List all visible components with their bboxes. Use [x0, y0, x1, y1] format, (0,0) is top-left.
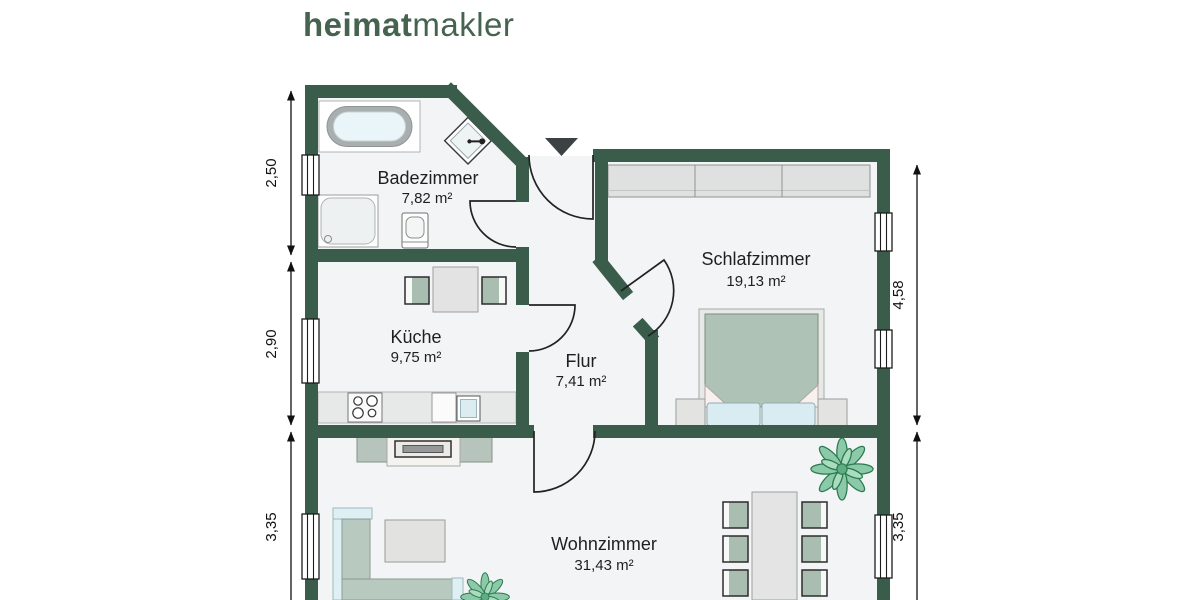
window-bedroom-2 — [875, 330, 892, 368]
plant-icon-1 — [811, 438, 873, 500]
dimension-label-left-3: 3,35 — [263, 512, 280, 541]
kitchen-sink — [432, 393, 480, 422]
window-bedroom-1 — [875, 213, 892, 251]
stove — [348, 393, 382, 422]
dimension-lines-left: 2,50 2,90 3,35 — [263, 91, 291, 600]
dimension-label-right-2: 3,35 — [890, 512, 907, 541]
dining-chair-5 — [802, 536, 827, 562]
nightstand-left — [676, 399, 705, 428]
room-label-kueche: Küche 9,75 m² — [390, 327, 441, 366]
shower — [318, 195, 378, 247]
room-area-schlafzimmer: 19,13 m² — [726, 273, 785, 290]
window-livingroom-left — [302, 514, 319, 579]
floor-plan: Badezimmer 7,82 m² Küche 9,75 m² Flur 7,… — [0, 0, 1200, 600]
kitchen-table — [433, 267, 478, 312]
wardrobe — [608, 165, 870, 197]
dining-chair-3 — [723, 570, 748, 596]
room-area-kueche: 9,75 m² — [391, 349, 442, 366]
window-bathroom — [302, 155, 319, 195]
coffee-table — [385, 520, 445, 562]
dining-chair-1 — [723, 502, 748, 528]
double-bed — [699, 309, 824, 428]
dimension-label-right-1: 4,58 — [890, 280, 907, 309]
kitchen-chair-right — [482, 277, 506, 304]
bathtub — [319, 101, 420, 152]
window-kitchen — [302, 319, 319, 383]
floorplan-canvas: heimatmakler — [0, 0, 1200, 600]
dimension-lines-right: 4,58 3,35 — [890, 165, 917, 600]
dimension-label-left-1: 2,50 — [263, 158, 280, 187]
entrance-arrow-icon — [545, 138, 578, 156]
kitchen-counter — [318, 392, 516, 423]
toilet — [402, 213, 428, 248]
room-area-badezimmer: 7,82 m² — [402, 190, 453, 207]
room-name-kueche: Küche — [390, 327, 441, 347]
dining-chair-4 — [802, 502, 827, 528]
dining-chair-2 — [723, 536, 748, 562]
dining-chair-6 — [802, 570, 827, 596]
dining-table — [752, 492, 797, 600]
room-name-schlafzimmer: Schlafzimmer — [701, 249, 810, 269]
dimension-label-left-2: 2,90 — [263, 329, 280, 358]
kitchen-chair-left — [405, 277, 429, 304]
tv-sideboard — [357, 436, 492, 466]
nightstand-right — [818, 399, 847, 428]
tv — [395, 441, 451, 457]
room-area-flur: 7,41 m² — [556, 373, 607, 390]
room-name-flur: Flur — [566, 351, 597, 371]
room-name-badezimmer: Badezimmer — [377, 168, 478, 188]
room-name-wohnzimmer: Wohnzimmer — [551, 534, 657, 554]
room-area-wohnzimmer: 31,43 m² — [574, 557, 633, 574]
